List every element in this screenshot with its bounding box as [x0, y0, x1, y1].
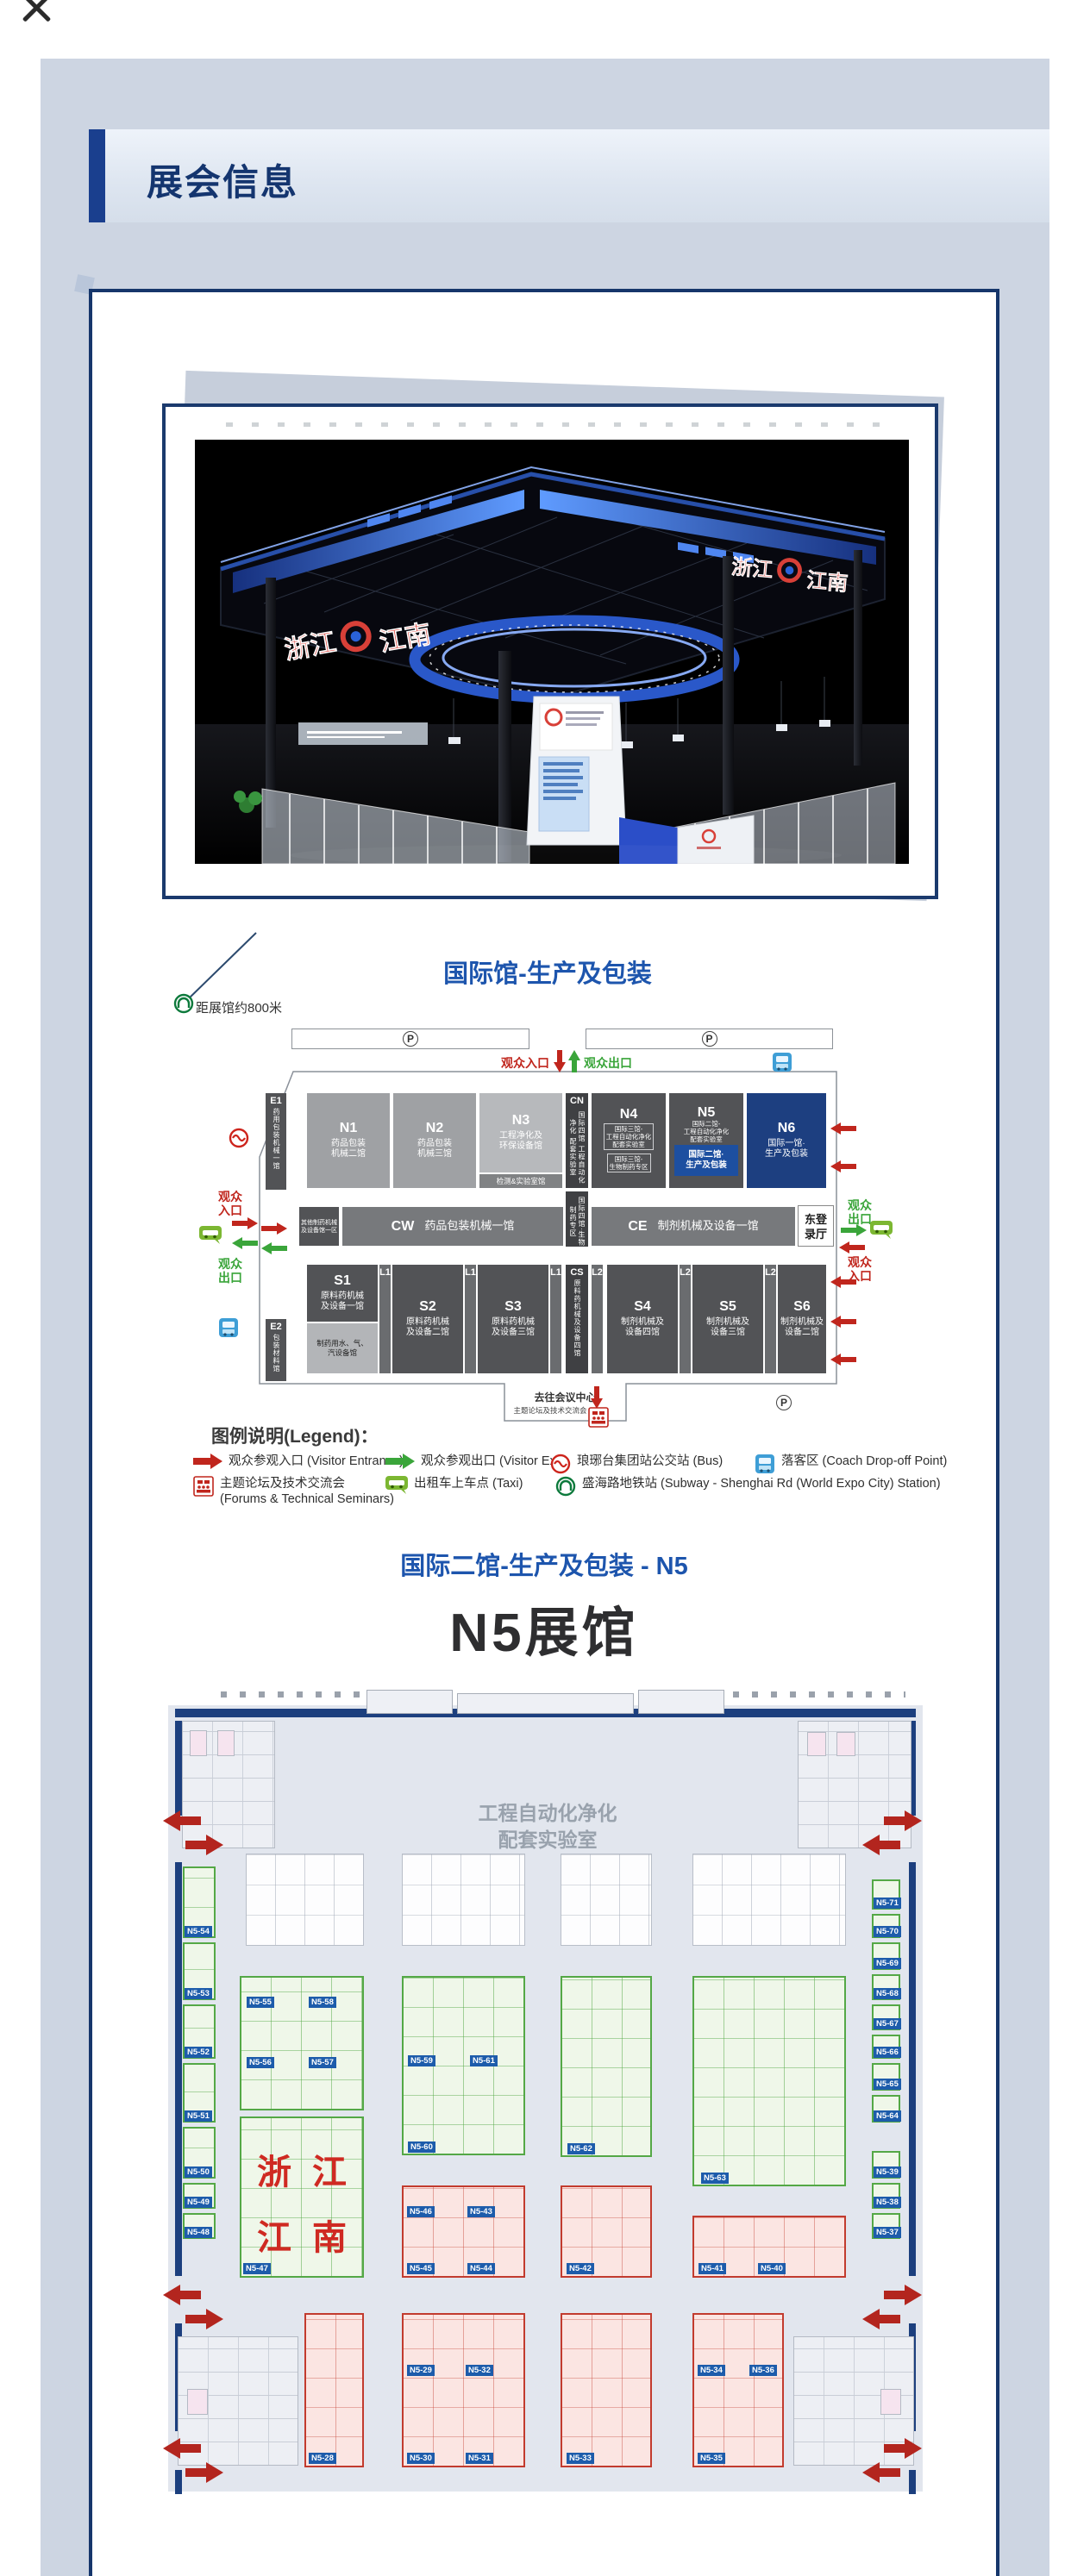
- entrance-arrow-down: [554, 1050, 566, 1077]
- legend-label: 主题论坛及技术交流会(Forums & Technical Seminars): [220, 1476, 394, 1507]
- n5-section-subtitle: 国际二馆-生产及包装 - N5: [89, 1546, 999, 1582]
- booth-group-red: N5-28: [304, 2313, 364, 2467]
- booth-label-N5-52: N5-52: [185, 2047, 212, 2058]
- page-title: 展会信息: [147, 153, 298, 206]
- booth-group-red: N5-33: [561, 2313, 652, 2467]
- legend-label: 落客区 (Coach Drop-off Point): [781, 1454, 947, 1469]
- booth-label-N5-39: N5-39: [874, 2166, 901, 2178]
- seminar-icon: [193, 1476, 214, 1500]
- bus-icon: [218, 1317, 239, 1342]
- hall-S6: S6制剂机械及 设备二馆: [778, 1265, 826, 1373]
- plan-wall-left: [175, 1721, 182, 1816]
- east-registration-hall: 东登 录厅: [798, 1205, 834, 1247]
- booth-N5-49: N5-49: [183, 2183, 216, 2209]
- circulation-arrow: [884, 2285, 922, 2310]
- flow-arrow: [830, 1276, 856, 1292]
- booth-label-N5-40: N5-40: [758, 2263, 786, 2274]
- booth-unassigned: [402, 1854, 525, 1946]
- legend-item: 落客区 (Coach Drop-off Point): [755, 1454, 947, 1478]
- highlight-booth-char: 浙: [257, 2144, 291, 2194]
- booth-label-N5-60: N5-60: [408, 2141, 435, 2153]
- hall-制药用水: 制药用水、气、 汽设备馆: [307, 1323, 378, 1373]
- circulation-arrow: [163, 2285, 201, 2310]
- hall-S4: S4制剂机械及 设备四馆: [607, 1265, 678, 1373]
- arrow-red-icon: [193, 1454, 222, 1472]
- plan-wall-left: [175, 2470, 182, 2494]
- hall-S2: S2原料药机械 及设备二馆: [392, 1265, 463, 1373]
- booth-label-N5-68: N5-68: [874, 1988, 901, 1999]
- highlight-booth-char: 江: [312, 2144, 347, 2194]
- metro-green-icon: [555, 1476, 576, 1500]
- booth-label-N5-44: N5-44: [467, 2263, 495, 2274]
- svg-text:江南: 江南: [805, 569, 849, 596]
- booth-group-red: N5-41N5-40: [692, 2216, 846, 2278]
- circulation-arrow: [185, 2462, 223, 2487]
- parking-strip: P: [586, 1029, 833, 1049]
- hall-L1: L1: [379, 1265, 391, 1373]
- legend-block: 图例说明(Legend)： 观众参观入口 (Visitor Entrance)观…: [168, 1422, 962, 1535]
- exit-arrow: [232, 1237, 258, 1254]
- vent-dashes: [221, 1691, 361, 1698]
- top-entrance-label: 观众入口: [472, 1056, 549, 1070]
- left-exit-label: 观众 出口: [218, 1257, 242, 1285]
- booth-group-red: N5-46N5-43N5-45N5-44: [402, 2185, 525, 2278]
- metro-red-icon: [550, 1454, 571, 1478]
- plan-wall-right: [909, 2470, 916, 2494]
- booth-label-N5-61: N5-61: [470, 2055, 498, 2066]
- hall-E1: E1药用包装机械一馆: [266, 1093, 286, 1190]
- circulation-arrow: [185, 2309, 223, 2334]
- metro-distance-note: 距展馆约800米: [196, 998, 282, 1016]
- booth-group-red: N5-34N5-36N5-35: [692, 2313, 784, 2467]
- hall-CS: CS原料药机械及设备四馆: [566, 1265, 588, 1373]
- booth-N5-70: N5-70: [872, 1914, 900, 1938]
- legend-item: 观众参观出口 (Visitor Exit): [385, 1454, 567, 1472]
- booth-label-N5-51: N5-51: [185, 2110, 212, 2122]
- hall-N6: N6国际一馆· 生产及包装: [747, 1093, 826, 1188]
- exit-arrow: [841, 1224, 867, 1241]
- exit-arrow: [261, 1242, 287, 1259]
- hall-CW: CW药品包装机械一馆: [342, 1207, 563, 1246]
- booth-N5-54: N5-54: [183, 1866, 216, 1938]
- hall-CE: CE制剂机械及设备一馆: [592, 1207, 795, 1246]
- booth-label-N5-64: N5-64: [874, 2110, 901, 2122]
- booth-N5-68: N5-68: [872, 1974, 900, 2000]
- hall-L1: L1: [465, 1265, 476, 1373]
- right-exit-label: 观众 出口: [848, 1198, 872, 1226]
- top-exit-label: 观众出口: [584, 1056, 632, 1070]
- booth-label-N5-47: N5-47: [243, 2263, 271, 2274]
- highlight-booth-char: 江: [257, 2210, 291, 2260]
- booth-N5-66: N5-66: [872, 2035, 900, 2059]
- entrance-arrow: [232, 1217, 258, 1234]
- header-accent-bar: [89, 129, 105, 222]
- flow-arrow: [830, 1316, 856, 1332]
- legend-item: 观众参观入口 (Visitor Entrance): [193, 1454, 404, 1472]
- booth-N5-37: N5-37: [872, 2213, 900, 2239]
- booth-label-N5-58: N5-58: [309, 1997, 336, 2008]
- booth-label-N5-54: N5-54: [185, 1926, 212, 1937]
- booth-label-N5-55: N5-55: [247, 1997, 274, 2008]
- booth-N5-64: N5-64: [872, 2095, 900, 2123]
- parking-icon: P: [776, 1395, 792, 1410]
- booth-group-green: N5-59N5-61N5-60: [402, 1976, 525, 2155]
- entrance-structure: [366, 1690, 453, 1714]
- booth-N5-50: N5-50: [183, 2127, 216, 2179]
- legend-label: 出租车上车点 (Taxi): [414, 1476, 523, 1491]
- parking-strip: P: [291, 1029, 529, 1049]
- taxi-icon: [385, 1476, 408, 1498]
- booth-label-N5-36: N5-36: [749, 2365, 777, 2376]
- circulation-arrow: [163, 1810, 201, 1835]
- parking-icon: P: [702, 1031, 717, 1047]
- hall-S1: S1原料药机械 及设备一馆: [307, 1265, 378, 1322]
- vent-dashes: [733, 1691, 905, 1698]
- booth-N5-65: N5-65: [872, 2063, 900, 2091]
- legend-label: 观众参观入口 (Visitor Entrance): [229, 1454, 404, 1469]
- booth-N5-71: N5-71: [872, 1879, 900, 1910]
- booth-group-green: N5-62: [561, 1976, 652, 2157]
- flow-arrow: [830, 1122, 856, 1139]
- booth-N5-39: N5-39: [872, 2151, 900, 2179]
- circulation-arrow: [862, 2309, 900, 2334]
- booth-label-N5-48: N5-48: [185, 2227, 212, 2238]
- booth-label-N5-30: N5-30: [407, 2453, 435, 2464]
- booth-N5-47-highlight: N5-47浙江江南: [240, 2116, 364, 2278]
- hall-其他制药: 其他制药机械 及设备馆一区: [299, 1207, 339, 1246]
- article-page: 展会信息: [0, 0, 1090, 2576]
- booth-label-N5-65: N5-65: [874, 2079, 901, 2090]
- hall-CN: CN国际四馆 工程自动化净化 配套实验室: [566, 1093, 588, 1188]
- n5-floorplan-figure[interactable]: 工程自动化净化 配套实验室 N5-55N5-58N5-56N5-57N5-59N…: [160, 1681, 931, 2500]
- hall-N3: N3工程净化及 环保设备馆: [479, 1093, 562, 1172]
- booth-unassigned: [246, 1854, 364, 1946]
- svg-text:浙江: 浙江: [730, 555, 774, 582]
- booth-label-N5-31: N5-31: [466, 2453, 493, 2464]
- map-title: 国际馆-生产及包装: [168, 953, 927, 990]
- n5-hall-title: N5展馆: [89, 1589, 999, 1666]
- taxi-icon: [199, 1226, 222, 1249]
- booth-label-N5-71: N5-71: [874, 1898, 901, 1909]
- booth-label-N5-50: N5-50: [185, 2166, 212, 2178]
- lab-room-note: 工程自动化净化 配套实验室: [401, 1800, 694, 1854]
- close-button[interactable]: [17, 0, 55, 26]
- hall-S5: S5制剂机械及 设备三馆: [692, 1265, 763, 1373]
- booth-label-N5-43: N5-43: [467, 2206, 495, 2217]
- booth-N5-38: N5-38: [872, 2183, 900, 2209]
- booth-label-N5-66: N5-66: [874, 2047, 901, 2058]
- booth-group-green: N5-55N5-58N5-56N5-57: [240, 1976, 364, 2110]
- booth-label-N5-46: N5-46: [407, 2206, 435, 2217]
- booth-photo[interactable]: 浙江 江南 浙江 江南: [162, 403, 938, 899]
- hall-N1: N1药品包装 机械二馆: [307, 1093, 390, 1188]
- booth-label-N5-42: N5-42: [567, 2263, 594, 2274]
- legend-item: 出租车上车点 (Taxi): [385, 1476, 523, 1498]
- parking-icon: P: [403, 1031, 418, 1047]
- hall-N5: N5国际二馆- 工程自动化净化 配套实验室国际二馆· 生产及包装: [669, 1093, 743, 1188]
- booth-label-N5-35: N5-35: [698, 2453, 725, 2464]
- legend-row: 主题论坛及技术交流会(Forums & Technical Seminars)出…: [168, 1476, 962, 1514]
- booth-group-green: N5-63: [692, 1976, 846, 2186]
- highlight-booth-char: 南: [312, 2210, 347, 2260]
- circulation-arrow: [884, 2438, 922, 2463]
- booth-label-N5-33: N5-33: [567, 2453, 594, 2464]
- metro-icon: [173, 993, 194, 1018]
- legend-item: 主题论坛及技术交流会(Forums & Technical Seminars): [193, 1476, 394, 1507]
- booth-N5-53: N5-53: [183, 1942, 216, 2000]
- booth-label-N5-69: N5-69: [874, 1958, 901, 1969]
- booth-label-N5-32: N5-32: [466, 2365, 493, 2376]
- circulation-arrow: [163, 2438, 201, 2463]
- photo-dash-row: [226, 422, 881, 427]
- circulation-arrow: [185, 1835, 223, 1860]
- hall-L2: L2: [765, 1265, 776, 1373]
- circulation-arrow: [862, 2462, 900, 2487]
- booth-label-N5-29: N5-29: [407, 2365, 435, 2376]
- flow-arrow: [830, 1160, 856, 1177]
- hall-S3: S3原料药机械 及设备三馆: [478, 1265, 548, 1373]
- taxi-icon: [870, 1221, 893, 1244]
- hall-N2: N2药品包装 机械三馆: [393, 1093, 476, 1188]
- booth-label-N5-70: N5-70: [874, 1926, 901, 1937]
- hall-L2: L2: [680, 1265, 691, 1373]
- booth-N5-51: N5-51: [183, 2063, 216, 2123]
- booth-N5-52: N5-52: [183, 2004, 216, 2059]
- hall-L2: L2: [592, 1265, 603, 1373]
- booth-label-N5-38: N5-38: [874, 2197, 901, 2208]
- flow-arrow: [830, 1354, 856, 1370]
- hall-国际四馆: 国际四馆·生物制药专区: [566, 1191, 588, 1247]
- entrance-arrow: [261, 1222, 287, 1239]
- legend-label: 观众参观出口 (Visitor Exit): [421, 1454, 567, 1469]
- hall-检测&实: 检测&实验室馆: [479, 1174, 562, 1188]
- plan-wall-left: [175, 1862, 182, 2276]
- entrance-structure: [457, 1693, 634, 1714]
- bus-icon: [772, 1052, 792, 1077]
- legend-label: 盛海路地铁站 (Subway - Shenghai Rd (World Expo…: [582, 1476, 941, 1491]
- circulation-arrow: [884, 1810, 922, 1835]
- bus-icon: [755, 1454, 775, 1478]
- booth-unassigned: [692, 1854, 846, 1946]
- booth-label-N5-62: N5-62: [567, 2143, 595, 2154]
- arrow-green-icon: [385, 1454, 415, 1472]
- legend-item: 琅琊台集团站公交站 (Bus): [550, 1454, 723, 1478]
- left-entrance-label: 观众 入口: [218, 1190, 242, 1217]
- booth-group-red: N5-29N5-32N5-30N5-31: [402, 2313, 525, 2467]
- booth-label-N5-45: N5-45: [407, 2263, 435, 2274]
- legend-title: 图例说明(Legend)：: [211, 1422, 379, 1448]
- booth-label-N5-67: N5-67: [874, 2018, 901, 2029]
- exit-arrow-up: [568, 1050, 580, 1077]
- booth-render-image: 浙江 江南 浙江 江南: [195, 440, 909, 864]
- booth-N5-69: N5-69: [872, 1942, 900, 1970]
- booth-N5-67: N5-67: [872, 2004, 900, 2030]
- entrance-structure: [638, 1690, 724, 1714]
- booth-label-N5-53: N5-53: [185, 1988, 212, 1999]
- legend-label: 琅琊台集团站公交站 (Bus): [577, 1454, 723, 1469]
- booth-unassigned: [561, 1854, 652, 1946]
- hall-L1: L1: [550, 1265, 561, 1373]
- booth-label-N5-41: N5-41: [698, 2263, 726, 2274]
- plan-wall-right: [909, 1862, 916, 2276]
- metro-logo-icon: [229, 1128, 249, 1153]
- hall-N4: N4国际三馆- 工程自动化净化 配套实验室国际三馆- 生物制药专区: [592, 1093, 666, 1188]
- legend-item: 盛海路地铁站 (Subway - Shenghai Rd (World Expo…: [555, 1476, 941, 1500]
- booth-label-N5-59: N5-59: [408, 2055, 435, 2066]
- booth-N5-48: N5-48: [183, 2213, 216, 2239]
- site-map-figure[interactable]: 国际馆-生产及包装 距展馆约800米 P P 观众入口 观众出口 观众 入口 观…: [168, 931, 927, 1429]
- booth-label-N5-63: N5-63: [701, 2173, 729, 2184]
- booth-group-red: N5-42: [561, 2185, 652, 2278]
- booth-label-N5-49: N5-49: [185, 2197, 212, 2208]
- circulation-arrow: [862, 1835, 900, 1860]
- booth-label-N5-37: N5-37: [874, 2227, 901, 2238]
- conference-note: 去往会议中心: [504, 1390, 626, 1404]
- booth-label-N5-28: N5-28: [309, 2453, 336, 2464]
- hall-E2: E2包装材料馆: [266, 1319, 286, 1381]
- booth-label-N5-56: N5-56: [247, 2057, 274, 2068]
- booth-label-N5-34: N5-34: [698, 2365, 725, 2376]
- booth-label-N5-57: N5-57: [309, 2057, 336, 2068]
